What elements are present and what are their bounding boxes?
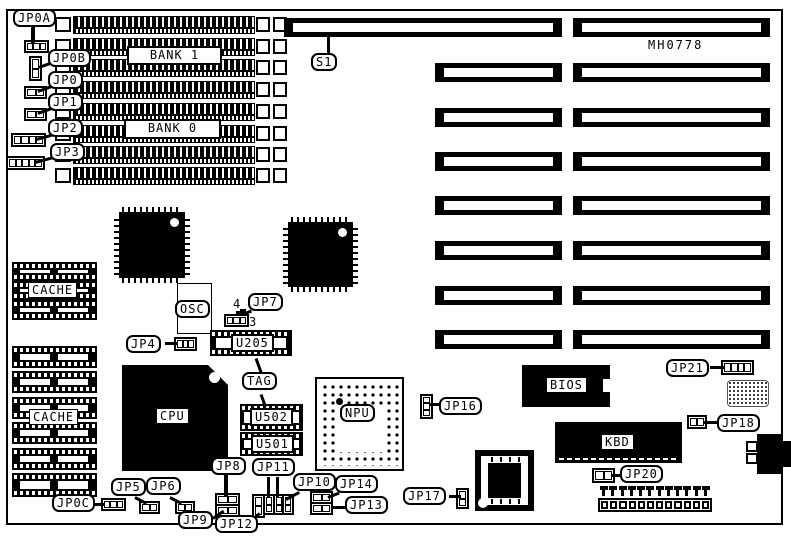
cache-socket	[12, 262, 97, 281]
simm-pins	[73, 158, 255, 164]
leader-jp11	[276, 477, 279, 497]
simm-pins	[73, 146, 255, 158]
simm-pins	[73, 28, 255, 34]
simm-clip	[273, 82, 287, 97]
callout-jp12: JP12	[215, 515, 258, 533]
simm-socket-row	[55, 167, 287, 186]
jumper-jp16	[422, 396, 431, 417]
simm-pins	[73, 103, 255, 115]
jumper-jp4	[176, 339, 195, 349]
callout-jp0: JP0	[48, 71, 83, 89]
npu-socket	[315, 377, 404, 471]
cache-lower-label: CACHE	[29, 409, 78, 425]
callout-jp18: JP18	[717, 414, 760, 432]
simm-pins	[73, 179, 255, 185]
leader-jp21	[710, 366, 725, 369]
isa-slot	[435, 152, 562, 171]
leader-jp0a	[31, 25, 35, 43]
callout-jp6: JP6	[146, 477, 181, 495]
simm-pins	[73, 167, 255, 179]
callout-jp7: JP7	[248, 293, 283, 311]
isa-slot	[573, 18, 770, 37]
callout-jp3: JP3	[50, 143, 85, 161]
jumper-jp11	[265, 496, 273, 513]
u502-label: U502	[250, 408, 293, 426]
cache-socket	[12, 346, 97, 368]
isa-slot	[435, 286, 562, 305]
connector-tab	[746, 441, 758, 452]
jumper-jp21	[723, 362, 752, 373]
u205-label: U205	[231, 334, 274, 352]
simm-socket-row	[55, 81, 287, 100]
callout-jp16: JP16	[439, 397, 482, 415]
simm-clip	[256, 82, 270, 97]
simm-clip	[273, 147, 287, 162]
isa-slot	[573, 330, 770, 349]
simm-clip	[256, 60, 270, 75]
bank0-label: BANK 0	[124, 119, 221, 139]
isa-slot	[435, 241, 562, 260]
chip-notch	[603, 379, 610, 392]
simm-clip	[256, 147, 270, 162]
callout-jp10: JP10	[293, 473, 336, 491]
pin1-dot	[170, 218, 179, 227]
pin1-dot	[338, 228, 347, 237]
cache-socket	[12, 448, 97, 470]
pin1-dot	[478, 498, 488, 508]
bank1-label: BANK 1	[127, 46, 222, 65]
isa-slot	[435, 108, 562, 127]
pin1-dot	[336, 398, 343, 405]
u501-label: U501	[251, 435, 294, 453]
isa-slot	[573, 286, 770, 305]
callout-jp0b: JP0B	[48, 49, 91, 67]
keyboard-connector	[783, 441, 791, 467]
simm-clip	[55, 168, 71, 183]
cache-socket	[12, 300, 97, 320]
simm-socket-row	[55, 16, 287, 35]
jumper-jp5	[141, 503, 158, 512]
power-connector-body	[598, 498, 712, 512]
qfp-chip	[119, 212, 185, 278]
isa-slot	[573, 241, 770, 260]
callout-jp1: JP1	[48, 93, 83, 111]
motherboard-diagram: BANK 1 BANK 0 JP0A JP0B JP0 JP1 JP2 JP3 …	[0, 0, 791, 543]
osc-label: OSC	[175, 300, 210, 318]
callout-jp0c: JP0C	[52, 494, 95, 512]
cache-socket	[12, 371, 97, 393]
plcc-socket	[475, 450, 534, 511]
simm-clip	[55, 17, 71, 32]
qfp-chip	[288, 222, 353, 287]
simm-socket-row	[55, 146, 287, 165]
simm-clip	[256, 104, 270, 119]
simm-clip	[273, 168, 287, 183]
jumper-jp8	[217, 495, 238, 504]
callout-jp11: JP11	[252, 458, 295, 476]
part-number: MH0778	[648, 38, 703, 52]
callout-jp13: JP13	[345, 496, 388, 514]
isa-slot	[435, 196, 562, 215]
callout-jp2: JP2	[48, 119, 83, 137]
bios-label: BIOS	[546, 377, 587, 393]
isa-slot	[435, 330, 562, 349]
callout-jp21: JP21	[666, 359, 709, 377]
callout-jp14: JP14	[335, 475, 378, 493]
simm-clip	[273, 60, 287, 75]
simm-clip	[273, 39, 287, 54]
callout-jp9: JP9	[178, 511, 213, 529]
isa-slot	[435, 63, 562, 82]
power-connector	[598, 486, 712, 512]
tag-label: TAG	[242, 372, 277, 390]
simm-clip	[256, 168, 270, 183]
leader-jp13	[331, 506, 346, 509]
connector-tab	[746, 453, 758, 464]
isa-slot	[573, 196, 770, 215]
isa-slot	[284, 18, 562, 37]
plcc-die	[488, 463, 521, 498]
callout-s1: S1	[311, 53, 337, 71]
cache-upper-label: CACHE	[28, 282, 77, 298]
simm-clip	[273, 126, 287, 141]
leader-jp4	[165, 342, 178, 345]
leader-s1	[327, 37, 330, 54]
simm-clip	[256, 39, 270, 54]
npu-label: NPU	[340, 404, 375, 422]
power-pins	[600, 486, 710, 496]
simm-pins	[73, 93, 255, 99]
jumper-jp17	[458, 490, 467, 507]
simm-pins	[73, 71, 255, 77]
jp7-pin4-number: 4	[233, 297, 240, 311]
keyboard-connector	[757, 434, 783, 474]
leader-jp8	[224, 475, 228, 496]
callout-jp20: JP20	[620, 465, 663, 483]
cpu-label: CPU	[156, 408, 189, 424]
simm-pins	[73, 16, 255, 28]
callout-jp17: JP17	[403, 487, 446, 505]
kbd-label: KBD	[601, 434, 634, 450]
jumper-jp13	[312, 504, 331, 513]
jumper-jp0a	[26, 42, 47, 51]
leader-jp17	[449, 495, 461, 498]
jumper-jp7	[226, 316, 247, 325]
leader-jp11	[267, 477, 270, 497]
cache-socket	[12, 422, 97, 444]
simm-clip	[273, 104, 287, 119]
simm-clip	[256, 126, 270, 141]
callout-jp0a: JP0A	[13, 9, 56, 27]
callout-jp5: JP5	[111, 478, 146, 496]
simm-clip	[256, 17, 270, 32]
simm-pins	[73, 81, 255, 93]
jp7-pin3-number: 3	[249, 315, 256, 329]
callout-jp8: JP8	[211, 457, 246, 475]
jumper-jp11	[275, 496, 283, 513]
speaker-pad	[727, 380, 769, 407]
callout-jp4: JP4	[126, 335, 161, 353]
isa-slot	[573, 108, 770, 127]
isa-slot	[573, 63, 770, 82]
isa-slot	[573, 152, 770, 171]
jumper-jp0c	[103, 500, 124, 509]
